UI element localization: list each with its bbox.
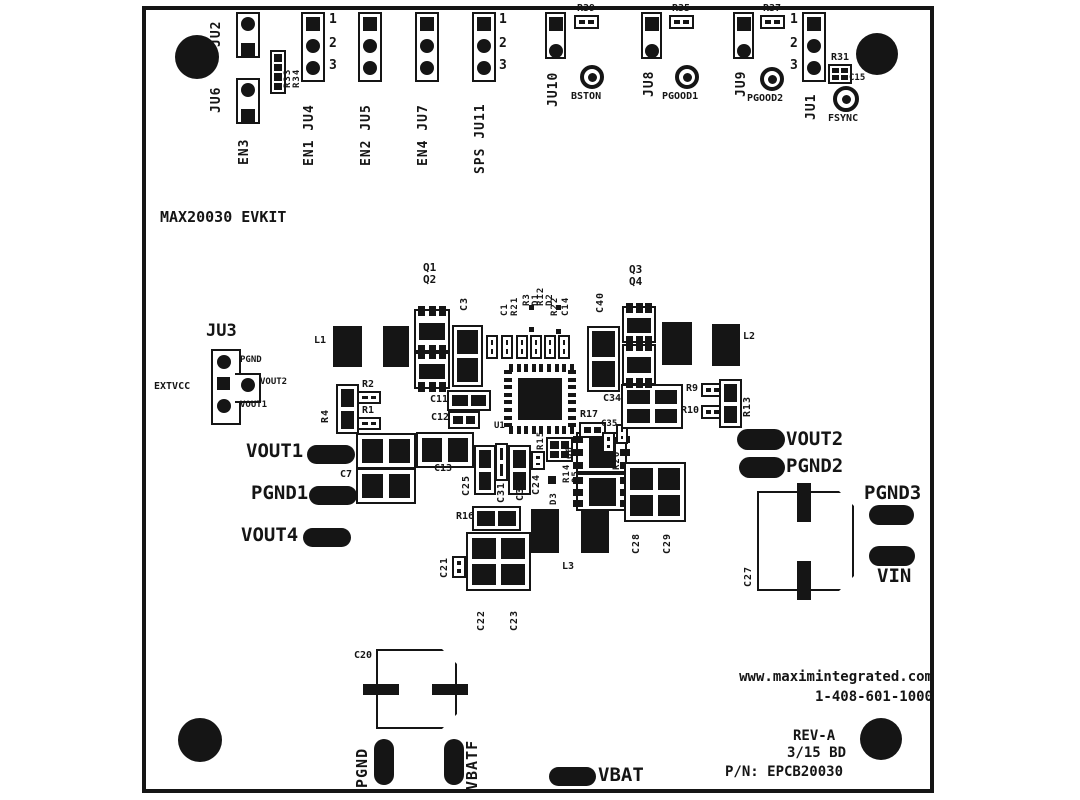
q3-q4-label: Q3 Q4	[629, 264, 653, 292]
c21-label: C21	[440, 552, 450, 578]
pcb-board: JU2JU6EN3R33R34123EN1 JU4EN2 JU5EN4 JU71…	[0, 0, 1080, 800]
jumper-pin-2	[241, 109, 255, 123]
c21-cap	[452, 556, 466, 578]
part-number-text: P/N: EPCB20030	[725, 765, 860, 781]
jumper-pin-1	[477, 17, 491, 31]
ic-pin	[562, 426, 566, 434]
vbatf-pad	[444, 739, 464, 785]
c27-pad-top	[797, 483, 811, 522]
c7-label: C7	[340, 470, 357, 481]
vout4-label: VOUT4	[241, 525, 303, 547]
pgnd-pad	[374, 739, 394, 785]
phone-text: 1-408-601-1000	[798, 690, 933, 706]
sot-pin	[573, 462, 583, 469]
cap-pad	[472, 564, 496, 585]
cap-pad	[479, 472, 491, 490]
ju11-jumper	[472, 12, 496, 82]
cap-pad	[765, 20, 771, 24]
c27-label: C27	[744, 557, 755, 587]
vout2-label: VOUT2	[786, 429, 850, 450]
ju2-label: JU2	[210, 13, 226, 47]
r12-resistor	[530, 335, 542, 359]
sot-pin	[626, 303, 633, 313]
c3-cap	[452, 325, 483, 387]
l1-pad-a	[333, 326, 362, 367]
cap-pad	[506, 340, 508, 345]
q4-transistor	[622, 344, 656, 385]
c13-label: C13	[434, 464, 458, 476]
cap-pad	[341, 389, 354, 407]
cap-pad	[506, 349, 508, 354]
cap-pad	[501, 564, 525, 585]
vout2-pad	[737, 429, 785, 450]
cap-pad	[579, 20, 585, 24]
c14-label: C14	[562, 290, 572, 316]
website-text: www.maximintegrated.com	[731, 670, 933, 686]
cap-pad	[471, 395, 487, 406]
cap-pad	[535, 340, 537, 345]
jumper-pin-2	[420, 39, 434, 53]
r2-label: R2	[362, 380, 378, 391]
sot-body	[627, 357, 651, 373]
vout4-pad	[303, 528, 351, 547]
ju3-vout2-label: VOUT2	[260, 378, 302, 389]
ic-pin	[568, 385, 576, 389]
r35-label: R35	[672, 4, 698, 15]
ju8-jumper	[641, 12, 662, 59]
q1-q2-label: Q1 Q2	[423, 262, 447, 290]
grid-pad	[274, 73, 282, 81]
cap-pad	[479, 450, 491, 468]
mounting-hole-bottom-right	[860, 718, 902, 760]
testpoint-core	[768, 75, 777, 84]
r39-resistor	[574, 15, 599, 29]
jumper-pin-1	[549, 17, 563, 31]
vout1-label: VOUT1	[246, 441, 308, 463]
ju6-jumper	[236, 78, 260, 124]
ic-pin	[568, 378, 576, 382]
cap-pad	[457, 330, 478, 354]
r39-label: R39	[577, 4, 603, 15]
jumper-pin-1	[241, 17, 255, 31]
ic-pin	[509, 426, 513, 434]
ju3-vout1-label: VOUT1	[240, 401, 282, 412]
vin-label: VIN	[877, 566, 917, 587]
sot-pin	[573, 500, 583, 507]
cap-pad	[658, 468, 681, 490]
cap-pad	[422, 438, 442, 462]
fsync-label: FSYNC	[828, 114, 870, 125]
jumper-pin-2	[306, 39, 320, 53]
c28-c29-caps	[624, 462, 686, 522]
ju4-pin3-label: 3	[329, 59, 338, 73]
l3-label: L3	[562, 562, 579, 574]
ic-pin	[547, 426, 551, 434]
sot-body	[589, 478, 616, 506]
jumper-pin-1	[241, 83, 255, 97]
grid-pad	[841, 75, 848, 80]
via-4	[556, 329, 561, 334]
cap-pad	[389, 439, 410, 463]
c7-cap	[356, 468, 416, 504]
jumper-pin-2	[363, 39, 377, 53]
vbatf-label: VBATF	[465, 726, 481, 790]
cap-pad	[630, 495, 653, 517]
r22-resistor	[544, 335, 556, 359]
board-title: MAX20030 EVKIT	[160, 209, 302, 227]
c32-label: C32	[516, 477, 526, 501]
grid-pad	[550, 451, 559, 459]
jumper-pin-2	[241, 43, 255, 57]
jumper-pin-2	[549, 44, 563, 58]
ic-pin	[555, 426, 559, 434]
c34-cap	[621, 384, 683, 429]
ic-pin	[524, 426, 528, 434]
pgnd2-pad	[739, 457, 785, 478]
ju4-jumper	[301, 12, 325, 82]
sot-pin	[636, 303, 643, 313]
r3-resistor	[516, 335, 528, 359]
sot-pin	[636, 378, 643, 388]
c22-c23-caps	[466, 532, 531, 591]
jumper-pin-3	[807, 61, 821, 75]
d3-label: D3	[550, 486, 560, 505]
r1-label: R1	[362, 406, 378, 417]
c31-label: C31	[497, 479, 507, 503]
ju6-label: JU6	[210, 79, 226, 113]
cap-pad	[535, 349, 537, 354]
ic-pin	[570, 426, 574, 434]
cap-pad	[549, 349, 551, 354]
cap-pad	[500, 448, 503, 460]
r31-label: R31	[831, 53, 853, 64]
ic-pin	[504, 393, 512, 397]
grid-pad	[274, 64, 282, 72]
grid-pad	[832, 68, 839, 73]
bston-testpoint	[580, 65, 604, 89]
cap-pad	[706, 388, 711, 392]
jumper-pin-3	[363, 61, 377, 75]
grid-pad	[274, 54, 282, 62]
ic-pin	[555, 364, 559, 372]
c14-cap	[558, 335, 570, 359]
cap-pad	[592, 331, 615, 357]
cap-pad	[491, 349, 493, 354]
r10-label: R10	[681, 406, 701, 417]
r20-label: R20	[613, 444, 623, 470]
ic-pin	[562, 364, 566, 372]
date-text: 3/15 BD	[787, 746, 859, 761]
cap-pad	[466, 416, 476, 424]
testpoint-core	[842, 95, 851, 104]
ju1-pin3-label: 3	[790, 59, 799, 73]
cap-pad	[563, 349, 565, 354]
cap-pad	[627, 409, 650, 423]
cap-pad	[706, 410, 711, 414]
q1-transistor	[414, 309, 450, 352]
l2-pad	[712, 324, 740, 366]
rev-text: REV-A	[793, 729, 853, 744]
jumper-pin-1	[737, 17, 751, 31]
u1-label: U1	[494, 422, 508, 432]
c22-label: C22	[477, 605, 487, 631]
pgnd3-label: PGND3	[864, 483, 934, 504]
c31-cap	[495, 443, 508, 481]
ic-pin	[504, 408, 512, 412]
ic-pin	[539, 364, 543, 372]
sot-pin	[573, 449, 583, 456]
mid-pad	[662, 322, 692, 365]
pgood1-testpoint	[675, 65, 699, 89]
ic-pin	[568, 400, 576, 404]
vbat-pad	[549, 767, 596, 786]
c20-pad-right	[432, 684, 468, 695]
cap-pad	[655, 409, 678, 423]
r16-resistor	[472, 506, 521, 531]
sot-pin	[645, 303, 652, 313]
c25-cap	[474, 445, 496, 495]
q2-transistor	[414, 352, 450, 389]
cap-pad	[607, 437, 610, 441]
jumper-pin-3	[420, 61, 434, 75]
cap-pad	[658, 495, 681, 517]
ic-pin	[547, 364, 551, 372]
ju9-label: JU9	[735, 61, 751, 97]
ju7-jumper	[415, 12, 439, 82]
sot-pin	[418, 382, 425, 392]
c29-label: C29	[663, 528, 673, 554]
cap-pad	[362, 422, 368, 425]
c12-cap	[448, 411, 480, 429]
cap-pad	[521, 349, 523, 354]
ju1-label: JU1	[805, 84, 821, 120]
r21-label: R21	[511, 286, 521, 316]
cap-pad	[477, 511, 495, 526]
sot-pin	[626, 341, 633, 351]
pgnd1-pad	[309, 486, 357, 505]
l2-label: L2	[743, 332, 760, 344]
ic-pin	[504, 416, 512, 420]
ju3-pgnd-label: PGND	[240, 356, 276, 367]
sot-pin	[429, 349, 436, 359]
c11-cap	[447, 390, 491, 411]
en3-label: EN3	[238, 127, 254, 165]
cap-pad	[584, 427, 591, 433]
jumper-pin-2	[477, 39, 491, 53]
ju3-pin-pgnd	[217, 355, 231, 369]
sot-pin	[439, 349, 446, 359]
r22-label: R22	[551, 286, 561, 316]
ju2-jumper	[236, 12, 260, 58]
cap-pad	[362, 474, 383, 498]
grid-pad	[832, 75, 839, 80]
pgnd1-label: PGND1	[251, 483, 311, 505]
r15-label: R15	[537, 428, 546, 450]
ic-pin	[568, 423, 576, 427]
ju5-jumper	[358, 12, 382, 82]
bston-label: BSTON	[571, 92, 615, 103]
mounting-hole-top-right	[856, 33, 898, 75]
jumper-pin-2	[737, 44, 751, 58]
cap-pad	[683, 20, 689, 24]
ju3-pin-vout1	[217, 399, 231, 413]
cap-pad	[362, 439, 383, 463]
fsync-testpoint	[833, 86, 859, 112]
c40-cap	[587, 326, 620, 392]
c20-pad-left	[363, 684, 399, 695]
c23-label: C23	[510, 605, 520, 631]
cap-pad	[457, 561, 461, 565]
cap-pad	[500, 464, 503, 476]
r21-resistor	[501, 335, 513, 359]
ju1-pin2-label: 2	[790, 37, 799, 51]
cap-pad	[371, 422, 377, 425]
r13-resistor	[719, 379, 742, 428]
ju3-pin-vout2	[241, 378, 255, 392]
cap-pad	[588, 20, 594, 24]
cap-pad	[452, 395, 468, 406]
ju11-pin3-label: 3	[499, 59, 508, 73]
c15-label: C15	[849, 74, 871, 84]
extvcc-label: EXTVCC	[154, 382, 202, 393]
vbat-label: VBAT	[598, 765, 654, 786]
sot-pin	[645, 341, 652, 351]
cap-pad	[536, 463, 540, 466]
jumper-pin-2	[807, 39, 821, 53]
sot-pin	[418, 349, 425, 359]
testpoint-core	[683, 73, 692, 82]
l1-label: L1	[314, 336, 332, 347]
cap-pad	[521, 340, 523, 345]
vout1-pad	[307, 445, 355, 464]
testpoint-core	[588, 73, 597, 82]
sot-pin	[418, 306, 425, 316]
cap-pad	[724, 384, 737, 402]
cap-pad	[607, 445, 610, 449]
r37-label: R37	[763, 4, 789, 15]
cap-pad	[536, 456, 540, 459]
r35-resistor	[669, 15, 694, 29]
q3-transistor	[622, 306, 656, 343]
ic-pin	[504, 400, 512, 404]
ju4-pin2-label: 2	[329, 37, 338, 51]
ic-pin	[568, 370, 576, 374]
cap-pad	[457, 569, 461, 573]
c20-label: C20	[354, 651, 377, 663]
sot-pin	[439, 382, 446, 392]
cap-pad	[621, 429, 623, 432]
ju11-pin1-label: 1	[499, 13, 508, 27]
sot-pin	[429, 382, 436, 392]
pgnd3-pad	[869, 505, 914, 525]
en1-ju4-label: EN1 JU4	[303, 86, 321, 166]
r37-resistor	[760, 15, 785, 29]
c3-label: C3	[460, 285, 471, 311]
r4-resistor	[336, 384, 359, 434]
ju10-label: JU10	[547, 61, 563, 107]
cap-pad	[491, 340, 493, 345]
jumper-pin-1	[807, 17, 821, 31]
en4-ju7-label: EN4 JU7	[417, 86, 435, 166]
cap-pad	[457, 358, 478, 382]
ic-pin	[524, 364, 528, 372]
r2-resistor	[357, 391, 381, 404]
d3-diode	[548, 476, 556, 484]
ic-pin	[504, 370, 512, 374]
q5-transistor	[576, 473, 627, 511]
jumper-pin-1	[363, 17, 377, 31]
sps-ju11-label: SPS JU11	[474, 86, 492, 174]
cap-pad	[501, 538, 525, 559]
ju4-pin1-label: 1	[329, 13, 338, 27]
ic-pin	[532, 364, 536, 372]
cap-pad	[621, 436, 623, 439]
cap-pad	[674, 20, 680, 24]
cap-pad	[453, 416, 463, 424]
l3-pad-b	[581, 509, 609, 553]
jumper-pin-3	[477, 61, 491, 75]
sot-pin	[636, 341, 643, 351]
sot-body	[419, 323, 445, 340]
cap-pad	[724, 406, 737, 424]
ic-pin	[504, 378, 512, 382]
en2-ju5-label: EN2 JU5	[360, 86, 378, 166]
r4-label: R4	[321, 399, 332, 423]
r9-label: R9	[686, 384, 701, 395]
cap-pad	[655, 390, 678, 404]
ic-pin	[568, 393, 576, 397]
c25-label: C25	[462, 470, 472, 496]
ju9-jumper	[733, 12, 754, 59]
c24-cap	[531, 451, 545, 470]
cap-pad	[498, 511, 516, 526]
cap-pad	[513, 450, 526, 468]
pgood1-label: PGOOD1	[662, 92, 714, 103]
ju1-jumper	[802, 12, 826, 82]
c28-label: C28	[632, 528, 642, 554]
sot-pin	[626, 378, 633, 388]
r13-label: R13	[743, 389, 754, 417]
sot-pin	[573, 477, 583, 484]
cap-pad	[630, 468, 653, 490]
l3-pad-a	[531, 509, 559, 553]
ju11-pin2-label: 2	[499, 37, 508, 51]
cap-pad	[448, 438, 468, 462]
sot-pin	[573, 489, 583, 496]
cap-pad	[362, 396, 368, 399]
c40-label: C40	[596, 290, 607, 313]
sot-pin	[429, 306, 436, 316]
grid-pad	[274, 83, 282, 91]
c24-label: C24	[532, 469, 542, 495]
ic-pin	[517, 364, 521, 372]
ic-pin	[568, 408, 576, 412]
pgnd-label: PGND	[355, 736, 370, 788]
via-2	[556, 305, 561, 310]
cap-pad	[371, 396, 377, 399]
sot-pin	[439, 306, 446, 316]
r1-resistor	[357, 417, 381, 430]
ic-pin	[517, 426, 521, 434]
via-1	[529, 305, 534, 310]
cap-pad	[594, 427, 601, 433]
c27-pad-bottom	[797, 561, 811, 600]
jumper-pin-1	[645, 17, 659, 31]
ju8-label: JU8	[643, 61, 659, 97]
sot-body	[419, 364, 445, 379]
ju3-label: JU3	[206, 322, 246, 342]
via-3	[529, 327, 534, 332]
